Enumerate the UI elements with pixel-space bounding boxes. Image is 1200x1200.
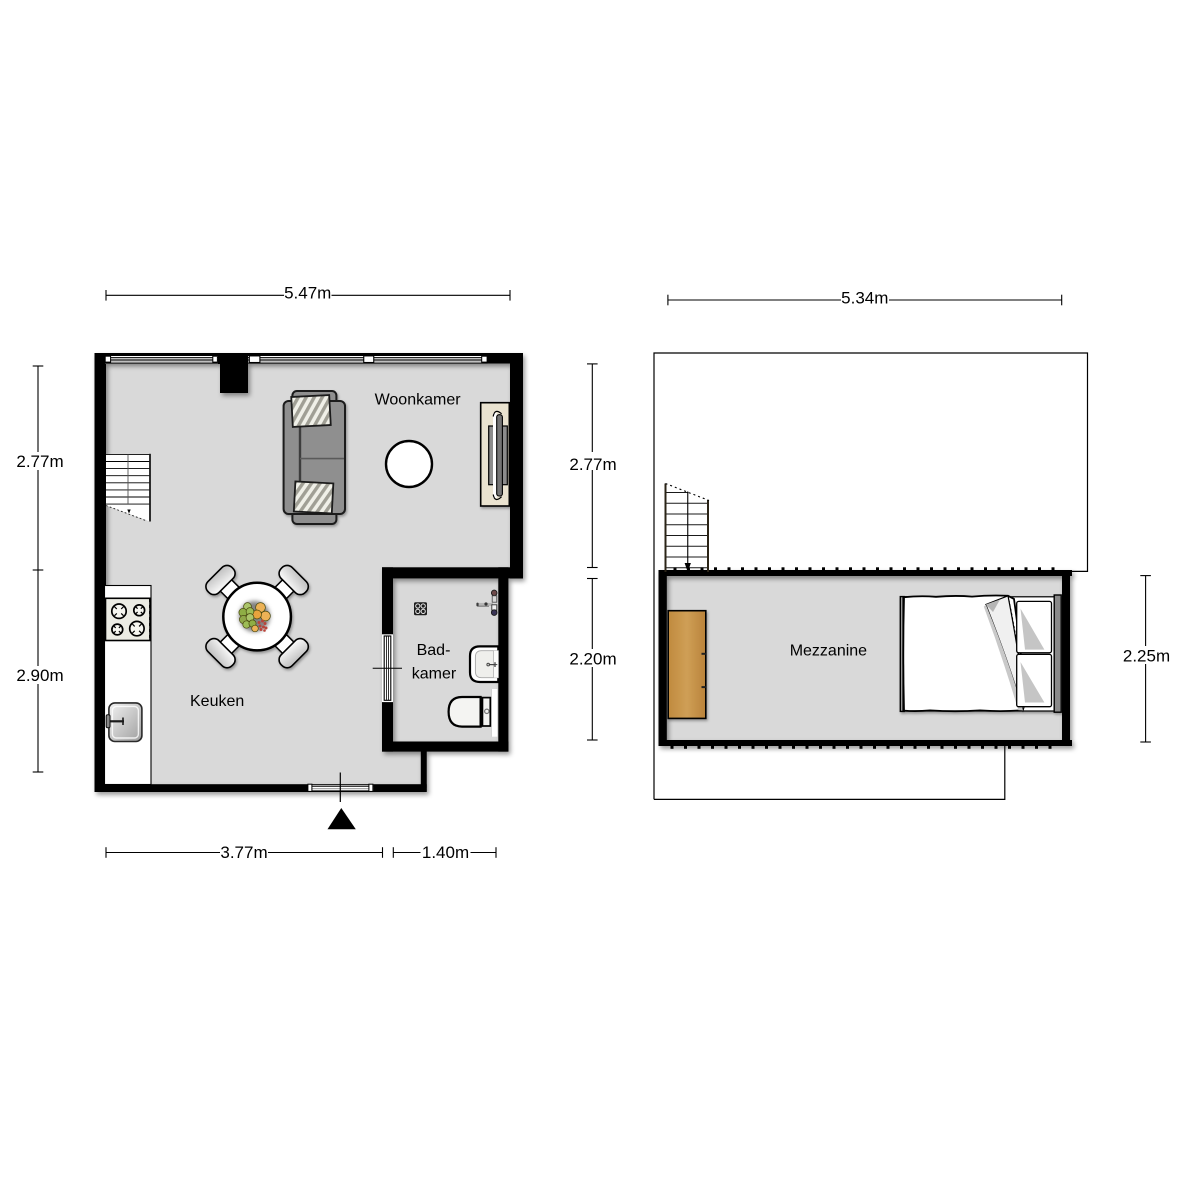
svg-text:Keuken: Keuken: [190, 693, 244, 710]
svg-text:Woonkamer: Woonkamer: [375, 391, 462, 408]
svg-text:3.77m: 3.77m: [220, 843, 267, 862]
svg-text:kamer: kamer: [412, 666, 457, 683]
svg-text:5.34m: 5.34m: [841, 288, 888, 307]
svg-text:2.20m: 2.20m: [569, 649, 616, 668]
svg-text:5.47m: 5.47m: [284, 284, 331, 303]
svg-text:2.90m: 2.90m: [16, 666, 63, 685]
svg-text:1.40m: 1.40m: [422, 843, 469, 862]
svg-text:2.25m: 2.25m: [1123, 646, 1170, 665]
svg-text:Mezzanine: Mezzanine: [790, 643, 867, 660]
svg-text:2.77m: 2.77m: [569, 455, 616, 474]
svg-text:2.77m: 2.77m: [16, 452, 63, 471]
svg-text:Bad-: Bad-: [417, 642, 451, 659]
